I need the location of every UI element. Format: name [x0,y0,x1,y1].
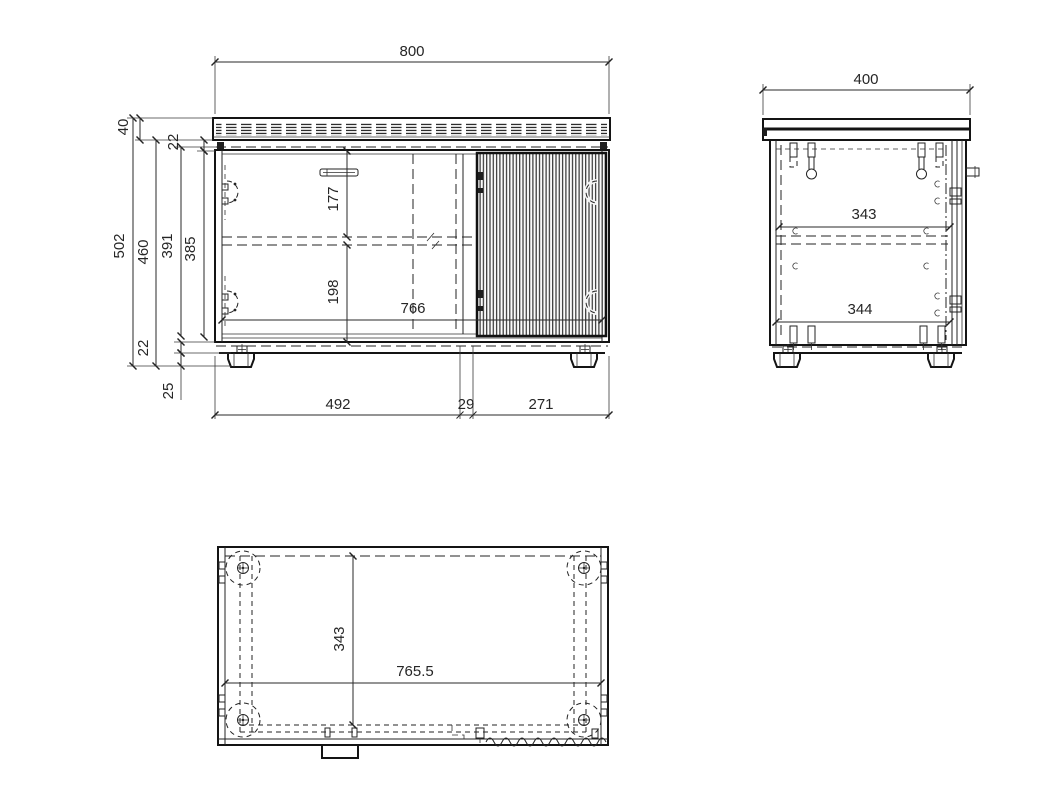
dim-front-inner-width: 766 [400,300,425,317]
bottom-dim-inner-depth: 343 [331,556,353,725]
dim-front-overall-width: 800 [399,43,424,60]
side-dim-inner-upper: 343 [779,206,950,227]
side-bottom-fittings [790,326,945,350]
bottom-foot-circles [226,551,601,737]
bottom-scallop-edge [452,725,606,746]
dim-front-shelf-to-bottom: 198 [325,279,342,304]
side-hanger-slots [790,143,943,179]
door-handle [320,169,358,176]
keyhole-icon [809,157,814,169]
side-dim-inner-lower: 344 [776,301,950,322]
front-top-panel [213,118,610,150]
bottom-tab [322,745,358,758]
bottom-panel-outline [218,547,608,745]
dim-front-top-board: 22 [165,134,182,151]
front-dim-shelf: 177 198 [325,151,347,342]
dim-side-inner-upper: 343 [851,206,876,223]
dim-front-top-panel-height: 40 [115,119,132,136]
dim-front-top-to-shelf: 177 [325,186,342,211]
dim-side-overall-depth: 400 [853,71,878,88]
dim-front-left-section: 492 [325,396,350,413]
front-dim-overall-width: 800 [215,43,609,114]
dim-front-body-height: 460 [135,239,152,264]
side-door-hardware [950,166,979,312]
dim-front-right-section: 271 [528,396,553,413]
bottom-dim-inner-width: 765.5 [225,663,601,683]
dim-front-inner-height: 385 [182,236,199,261]
dim-front-foot-height: 25 [160,383,177,400]
bottom-edge-fittings [219,562,607,738]
bottom-view: 343 765.5 [218,547,608,758]
knob-icon [966,166,979,178]
side-dim-overall-depth: 400 [763,71,970,115]
side-view: 400 343 344 [763,71,979,367]
front-dim-left-stack: 502 460 40 22 385 391 22 25 [111,118,231,400]
side-shelf-pin-holes [793,181,940,316]
dim-front-divider: 29 [458,396,475,413]
front-slatted-door [477,153,606,336]
front-feet [228,344,597,367]
side-top-panel [763,119,970,140]
front-dim-bottom-chain: 492 29 271 [215,346,609,419]
keyhole-icon [919,157,924,169]
side-carcass [770,140,966,353]
hinge-icon [222,276,238,330]
dim-side-inner-lower: 344 [847,301,872,318]
dim-front-bottom-board: 22 [135,340,152,357]
drawing-canvas: 800 502 460 40 22 385 391 22 [0,0,1061,796]
dim-bottom-inner-width: 765.5 [396,663,434,680]
dim-bottom-inner-depth: 343 [331,626,348,651]
front-view: 800 502 460 40 22 385 391 22 [111,43,610,419]
dim-front-overall-height: 502 [111,233,128,258]
dim-front-inner-height-back: 391 [159,233,176,258]
hinge-icon [222,165,238,220]
technical-drawing: 800 502 460 40 22 385 391 22 [0,0,1061,796]
